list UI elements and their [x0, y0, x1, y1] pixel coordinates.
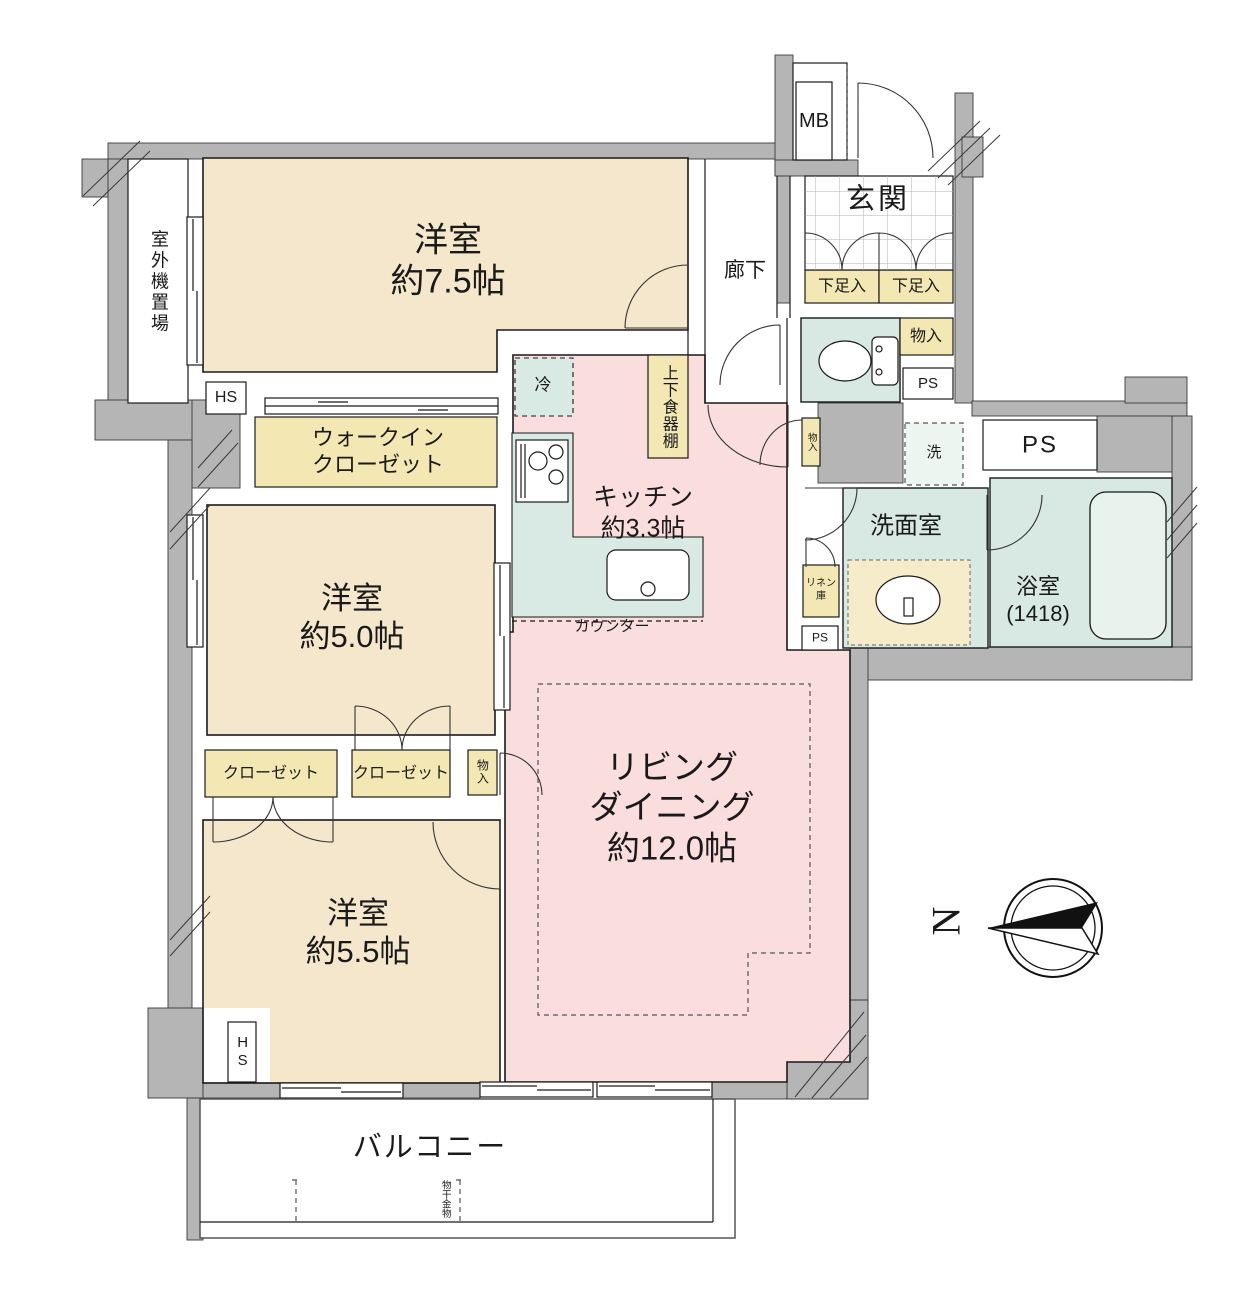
label-monoire-small: 物入	[805, 433, 817, 452]
label-western75: 洋室約7.5帖	[390, 221, 505, 304]
w50-sliding-partition	[494, 563, 510, 710]
window-w55-balcony	[280, 1083, 403, 1098]
label-shoe-right: 下足入	[892, 277, 940, 297]
label-mb: MB	[799, 109, 829, 133]
vanity-sink-icon	[876, 576, 940, 624]
label-hs-bottom: HS	[233, 1034, 251, 1070]
door-linen	[806, 538, 835, 567]
label-monoire-toilet: 物入	[910, 327, 942, 347]
label-counter: カウンター	[574, 618, 649, 636]
balcony-outline	[200, 1099, 735, 1238]
label-monoire-ld: 物入	[475, 759, 490, 785]
label-genkan: 玄関	[846, 182, 910, 217]
floor-plan: 洋室約7.5帖 室外機置場 HS ウォークインクローゼット 洋室約5.0帖 クロ…	[0, 0, 1251, 1306]
sink-icon	[607, 550, 689, 600]
label-corridor: 廊下	[724, 258, 766, 284]
compass-icon	[988, 879, 1102, 977]
label-closet-left: クローゼット	[223, 764, 319, 784]
label-linen: リネン庫	[804, 577, 838, 603]
label-closet-center: クローゼット	[353, 764, 449, 784]
label-wic: ウォークインクローゼット	[312, 425, 444, 479]
label-fridge: 冷	[535, 376, 552, 397]
label-dish-shelf: 上下食器棚	[658, 365, 678, 450]
stove-icon	[516, 440, 568, 502]
label-bathroom: 浴室(1418)	[1006, 574, 1070, 628]
floor-plan-drawing	[0, 0, 1251, 1306]
bathtub-icon	[1090, 492, 1166, 639]
label-western50: 洋室約5.0帖	[299, 580, 404, 656]
toilet-icon	[819, 337, 898, 385]
label-western55: 洋室約5.5帖	[305, 895, 410, 971]
label-ps-toilet: PS	[918, 375, 938, 393]
door-toilet	[720, 325, 780, 385]
door-entrance	[858, 83, 933, 158]
label-ps-large: PS	[1022, 430, 1058, 459]
label-kitchen: キッチン約3.3帖	[593, 483, 693, 544]
label-ps-linen: PS	[812, 631, 828, 646]
label-balcony: バルコニー	[353, 1130, 507, 1165]
label-shoe-left: 下足入	[818, 277, 866, 297]
window-w50-left	[187, 515, 203, 647]
label-washer: 洗	[926, 444, 941, 462]
label-north: N	[923, 907, 972, 936]
label-laundry-hook: 物干金物	[439, 1180, 451, 1218]
label-outdoor-unit: 室外機置場	[147, 230, 169, 335]
window-w75-left	[187, 217, 203, 365]
label-washroom: 洗面室	[870, 511, 942, 540]
label-hs-top: HS	[215, 388, 237, 408]
label-living-dining: リビングダイニング約12.0帖	[590, 748, 755, 869]
